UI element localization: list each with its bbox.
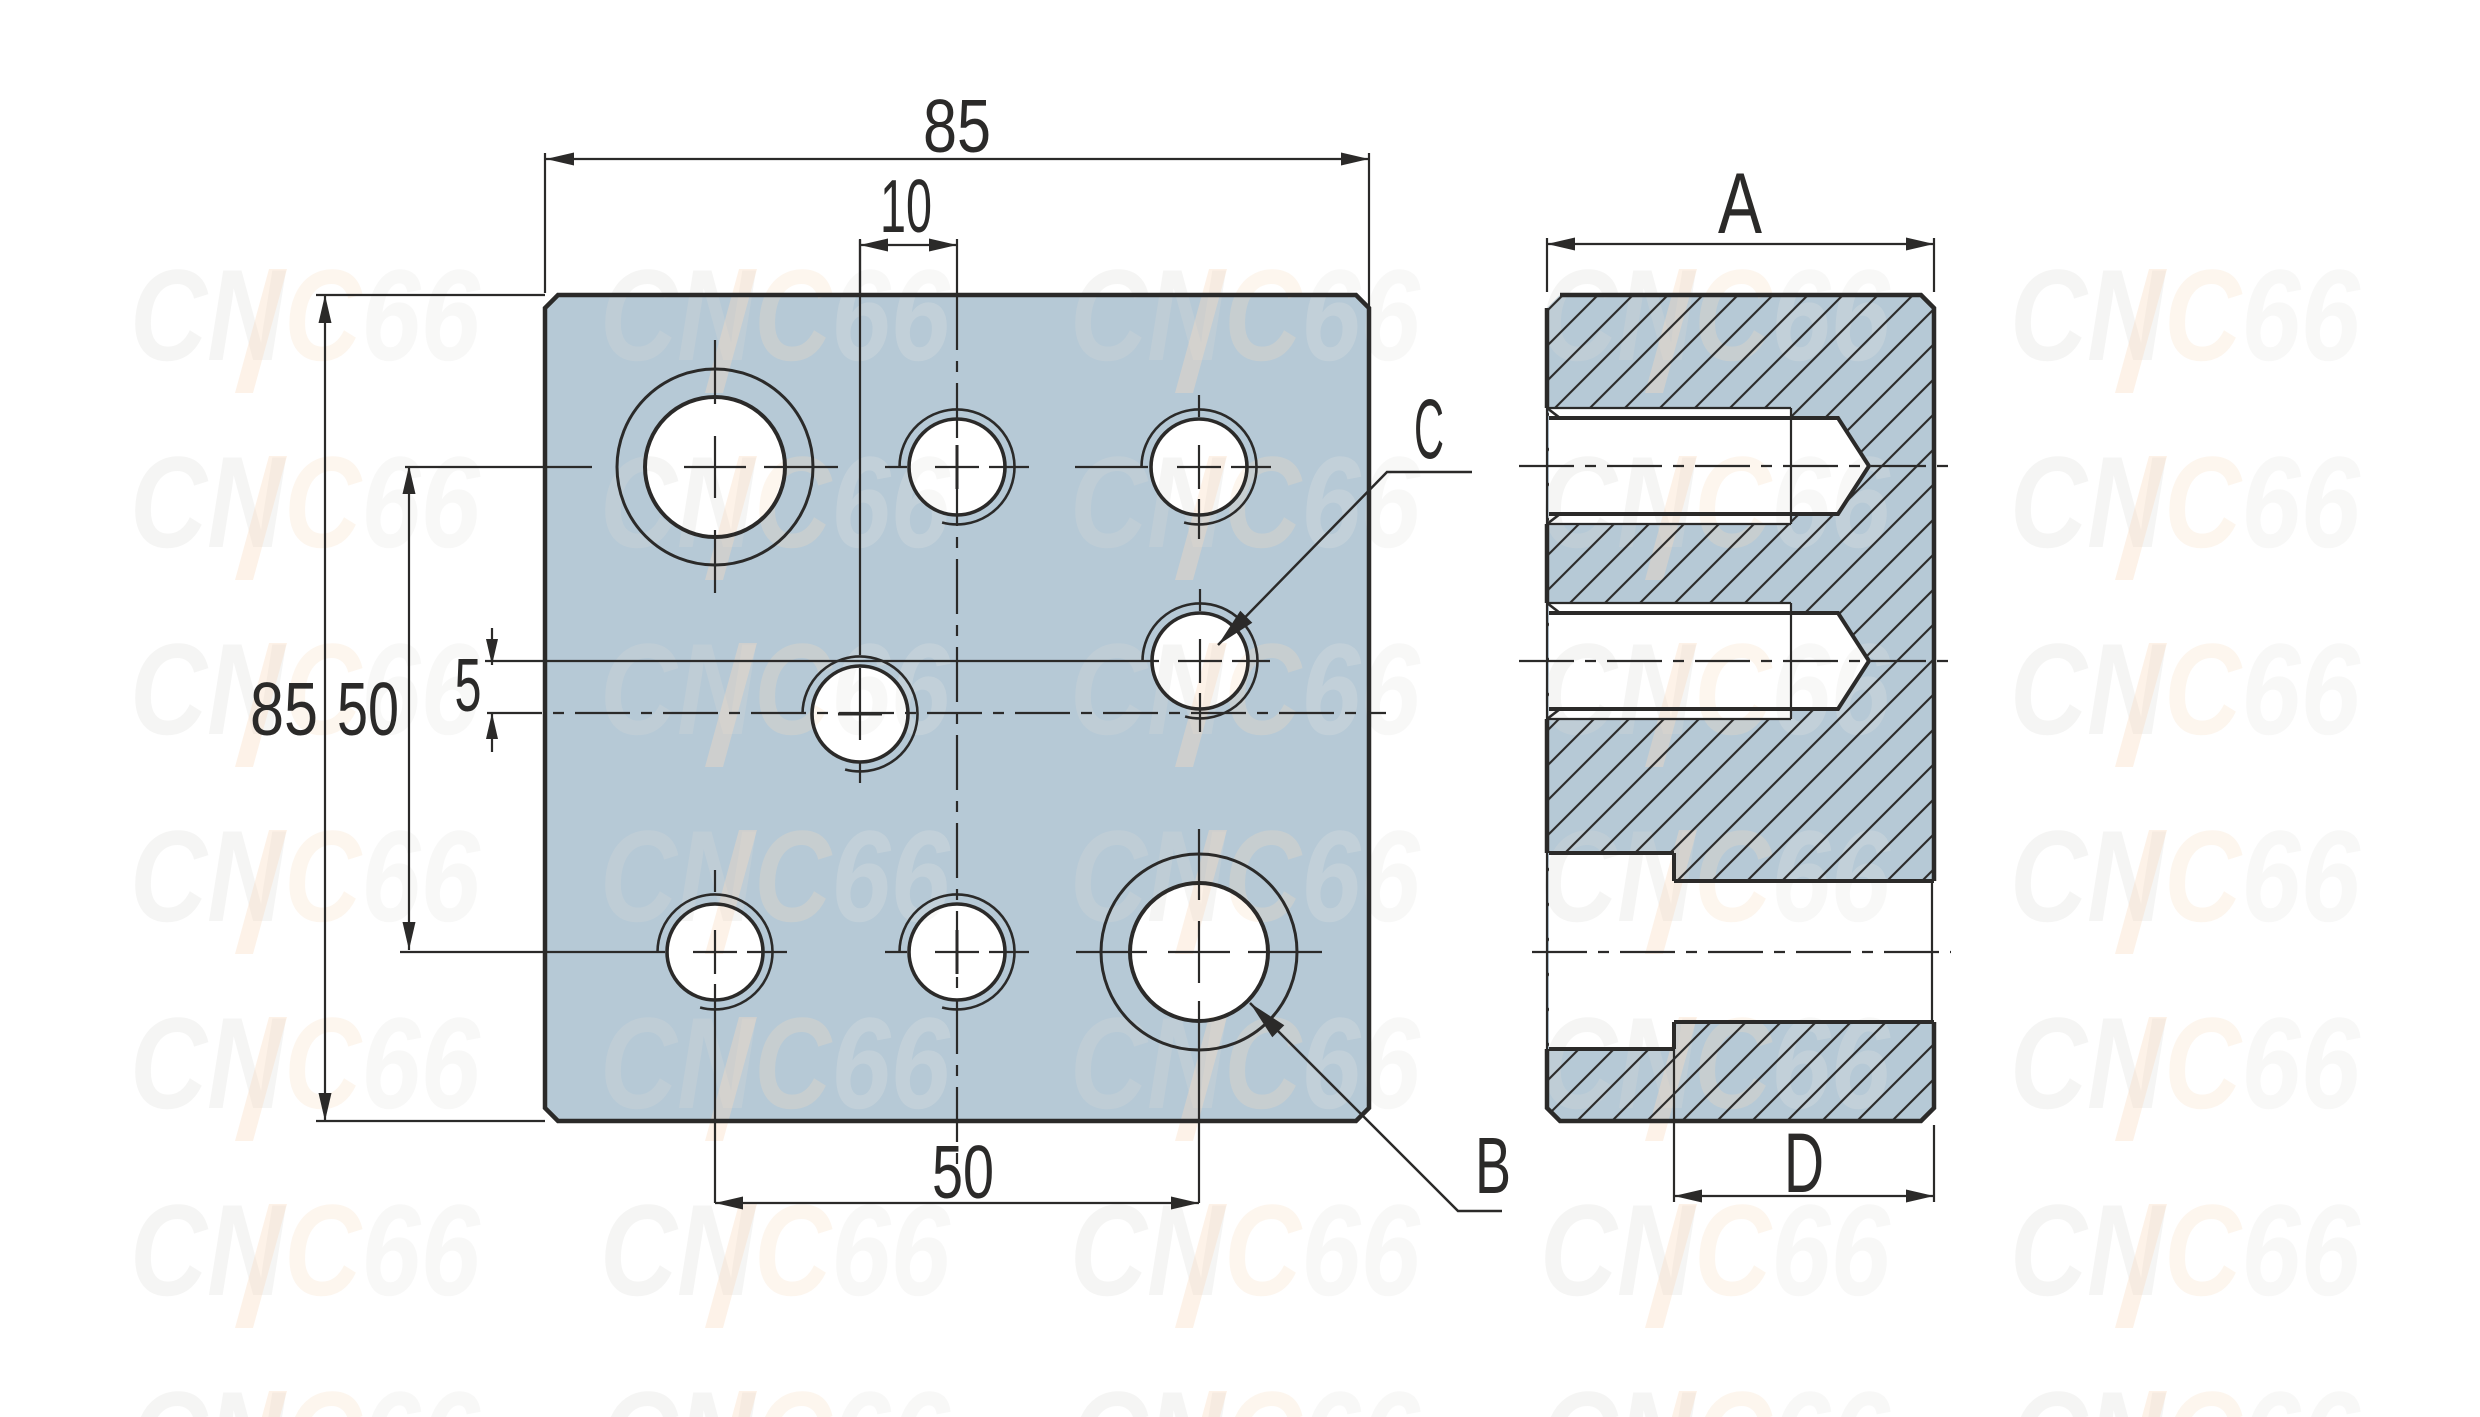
svg-text:CNC66: CNC66 — [2010, 242, 2361, 388]
svg-text:CNC66: CNC66 — [130, 803, 481, 949]
svg-text:CNC66: CNC66 — [600, 1364, 951, 1417]
svg-text:CNC66: CNC66 — [600, 242, 951, 388]
svg-text:CNC66: CNC66 — [600, 990, 951, 1136]
svg-text:CNC66: CNC66 — [2010, 803, 2361, 949]
svg-text:D: D — [1784, 1116, 1824, 1210]
svg-text:85: 85 — [250, 667, 318, 751]
svg-text:CNC66: CNC66 — [2010, 429, 2361, 575]
svg-text:CNC66: CNC66 — [2010, 1177, 2361, 1323]
svg-text:50: 50 — [932, 1130, 994, 1214]
svg-text:C: C — [1414, 382, 1444, 476]
svg-text:CNC66: CNC66 — [600, 1177, 951, 1323]
svg-text:CNC66: CNC66 — [2010, 616, 2361, 762]
svg-text:CNC66: CNC66 — [600, 616, 951, 762]
svg-text:CNC66: CNC66 — [130, 1364, 481, 1417]
svg-text:CNC66: CNC66 — [1070, 1177, 1421, 1323]
svg-text:CNC66: CNC66 — [130, 990, 481, 1136]
svg-text:CNC66: CNC66 — [1540, 1364, 1891, 1417]
svg-text:CNC66: CNC66 — [600, 803, 951, 949]
svg-text:50: 50 — [337, 667, 399, 751]
svg-text:B: B — [1475, 1121, 1511, 1210]
svg-text:CNC66: CNC66 — [2010, 990, 2361, 1136]
svg-text:CNC66: CNC66 — [2010, 1364, 2361, 1417]
svg-text:CNC66: CNC66 — [130, 242, 481, 388]
svg-text:CNC66: CNC66 — [130, 429, 481, 575]
svg-text:A: A — [1718, 156, 1762, 252]
svg-text:CNC66: CNC66 — [1540, 1177, 1891, 1323]
svg-text:10: 10 — [880, 164, 932, 248]
svg-text:85: 85 — [923, 84, 991, 168]
svg-text:5: 5 — [455, 643, 482, 727]
svg-text:CNC66: CNC66 — [130, 1177, 481, 1323]
svg-text:CNC66: CNC66 — [1070, 1364, 1421, 1417]
